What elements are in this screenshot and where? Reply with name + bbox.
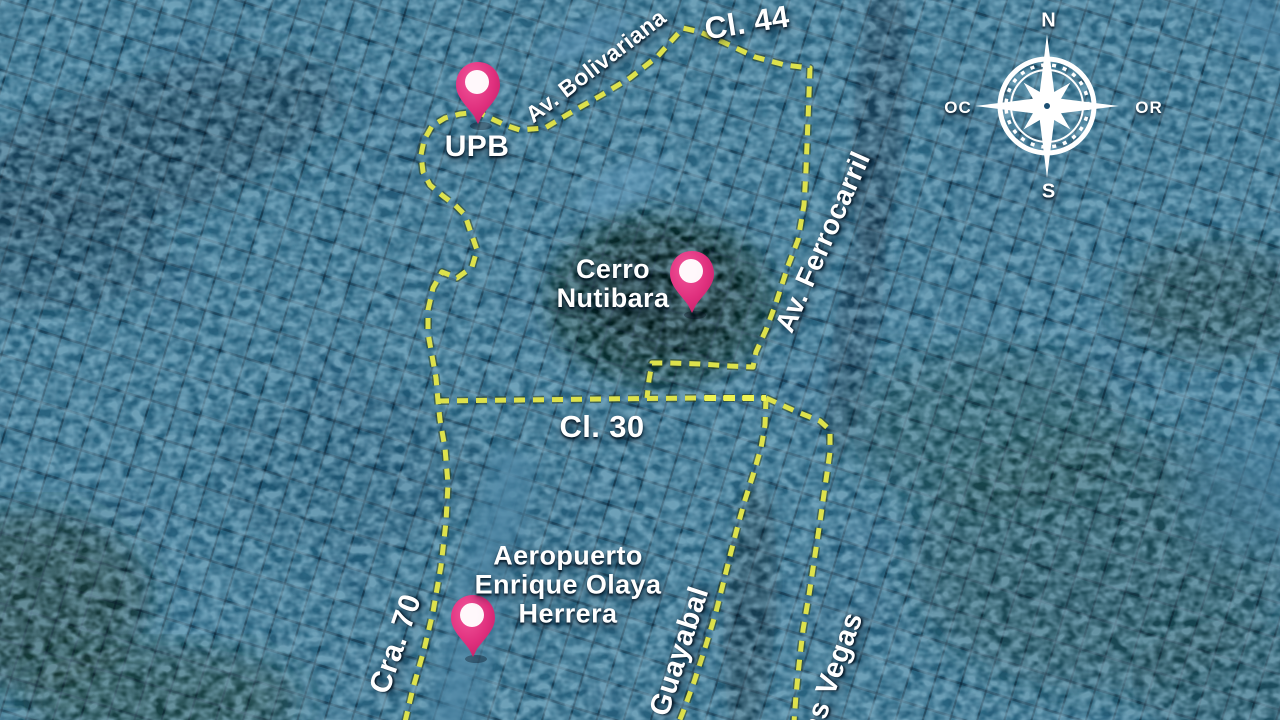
compass-label-east: OR — [1135, 98, 1163, 118]
aeropuerto-line1: Aeropuerto — [475, 541, 662, 570]
compass-label-north: N — [1041, 10, 1056, 33]
place-label-upb: UPB — [445, 130, 510, 164]
aeropuerto-line3: Herrera — [475, 600, 662, 629]
place-label-aeropuerto: Aeropuerto Enrique Olaya Herrera — [475, 541, 662, 628]
cerro-line2: Nutibara — [557, 284, 670, 313]
cerro-line1: Cerro — [557, 255, 670, 284]
map: Cl. 44 Av. Bolivariana UPB Cerro Nutibar… — [0, 0, 1280, 720]
compass-label-west: OC — [944, 98, 972, 118]
compass-label-south: S — [1042, 181, 1056, 204]
place-label-cerro-nutibara: Cerro Nutibara — [557, 255, 670, 313]
street-label-cl30: Cl. 30 — [559, 409, 644, 445]
aeropuerto-line2: Enrique Olaya — [475, 570, 662, 599]
